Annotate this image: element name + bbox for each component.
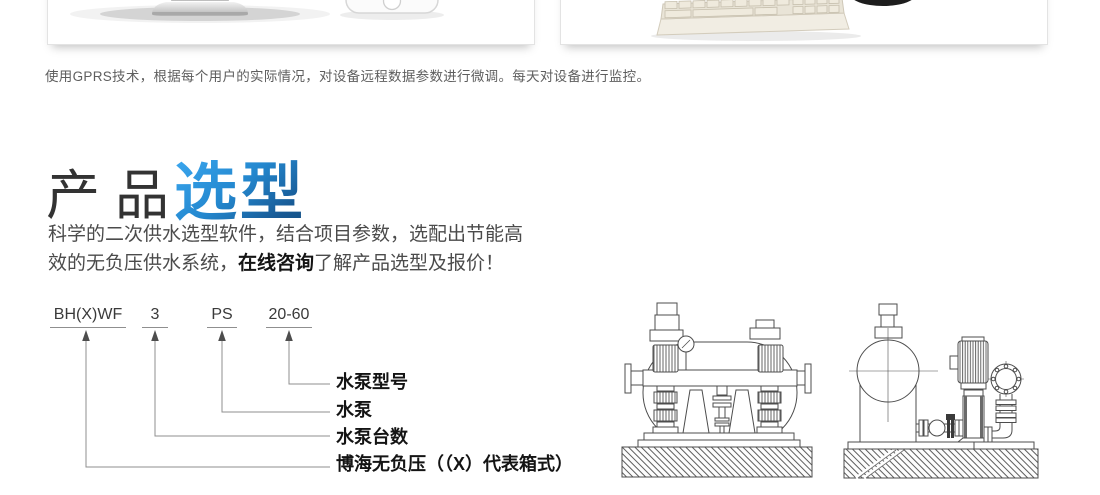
discharge-pipe [984,394,1016,442]
section-title-gray: 产品 [46,151,184,230]
intro-line-1: 科学的二次供水选型软件，结合项目参数，选配出节能高 [48,220,523,249]
intro-line-2: 效的无负压供水系统，在线咨询了解产品选型及报价！ [48,249,523,278]
model-label-pump-count: 水泵台数 [336,427,408,448]
model-label-pump-model: 水泵型号 [336,372,408,393]
base-plate [848,442,1034,449]
intro-paragraph: 科学的二次供水选型软件，结合项目参数，选配出节能高 效的无负压供水系统，在线咨询… [48,220,523,278]
mouse [849,0,917,6]
suction-pipe-valves [916,414,963,438]
keyboard [657,0,849,35]
pump-motor-left [653,345,678,372]
flange-end-view [988,361,1024,397]
foundation-hatch [622,447,812,477]
connector-pump-model [289,340,330,384]
connector-pump-type [222,340,330,412]
model-label-pump: 水泵 [336,400,372,421]
connector-series [86,340,330,467]
base-plate-upper [644,433,794,440]
base-plate-lower [638,440,800,447]
photo-card-monitor-phone [47,0,535,45]
online-consult-link[interactable]: 在线咨询 [238,253,314,274]
intro-line-2-post: 了解产品选型及报价！ [314,253,504,274]
photo-card-keyboard-mouse [560,0,1048,45]
pump-unit-side-view-drawing [842,300,1040,480]
model-label-series: 博海无负压（（X）代表箱式） [336,454,573,475]
arrowheads [82,330,293,341]
monitor-and-phone-image [48,0,534,44]
pump-stack-left [653,386,678,433]
foundation-hatch [844,449,1038,478]
pump-motor-right [758,345,783,372]
intro-line-2-pre: 效的无负压供水系统， [48,253,238,274]
keyboard-and-mouse-image [561,0,1047,44]
connector-pump-count [155,340,330,436]
pump-stack-right [757,386,782,433]
pump-unit-front-view-drawing [620,300,816,480]
tank-nozzles [650,303,780,341]
page: 使用GPRS技术，根据每个用户的实际情况，对设备远程数据参数进行微调。每天对设备… [0,0,1100,495]
gprs-description: 使用GPRS技术，根据每个用户的实际情况，对设备远程数据参数进行微调。每天对设备… [45,65,650,85]
monitor-stand [152,0,248,16]
smartphone [346,0,438,13]
